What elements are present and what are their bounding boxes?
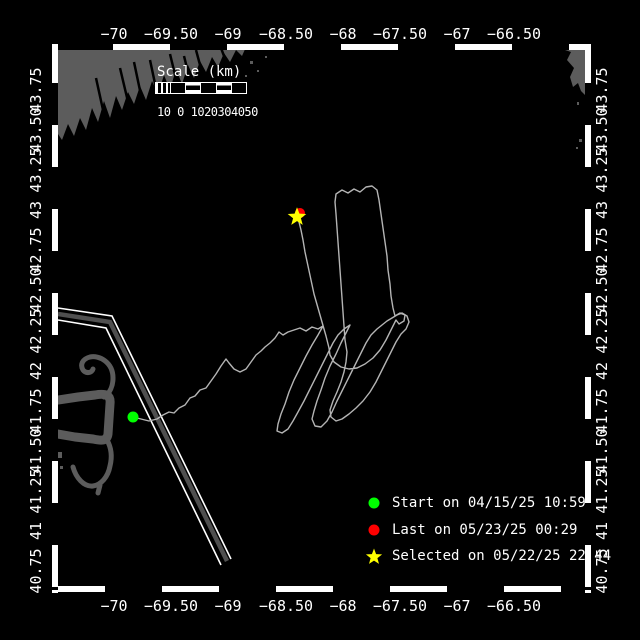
land-nova-scotia — [563, 47, 585, 95]
cape-cod-arm — [58, 394, 110, 440]
legend-item-selected: Selected on 05/22/25 22:44 — [360, 548, 390, 564]
shipping-lane-inner-line — [58, 320, 221, 565]
legend-selected-label: Selected on 05/22/25 22:44 — [392, 548, 611, 564]
legend-item-last: Last on 05/23/25 00:29 — [360, 522, 390, 538]
scalebar-segment — [200, 83, 215, 93]
scalebar-title: Scale (km) — [157, 64, 241, 80]
map-canvas[interactable]: −70 −69.50 −69 −68.50 −68 −67.50 −67 −66… — [0, 0, 640, 640]
scalebar — [155, 82, 247, 94]
scalebar-hatch-segment — [156, 83, 170, 93]
start-dot-icon — [360, 494, 390, 512]
small-islands — [58, 56, 582, 469]
scalebar-tick-labels: 10 0 1020304050 — [157, 105, 258, 119]
scalebar-segment — [170, 83, 185, 93]
scalebar-segment — [231, 83, 246, 93]
selected-star-icon — [360, 546, 390, 566]
glider-track — [133, 186, 409, 433]
last-dot-icon — [360, 521, 390, 539]
map-plot-area[interactable] — [0, 0, 640, 640]
scalebar-segment — [185, 83, 200, 93]
legend-last-label: Last on 05/23/25 00:29 — [392, 522, 577, 538]
start-marker — [128, 412, 139, 423]
cape-cod-lower-hook — [73, 440, 111, 493]
scalebar-segment — [216, 83, 231, 93]
legend-item-start: Start on 04/15/25 10:59 — [360, 495, 390, 511]
legend-start-label: Start on 04/15/25 10:59 — [392, 495, 586, 511]
